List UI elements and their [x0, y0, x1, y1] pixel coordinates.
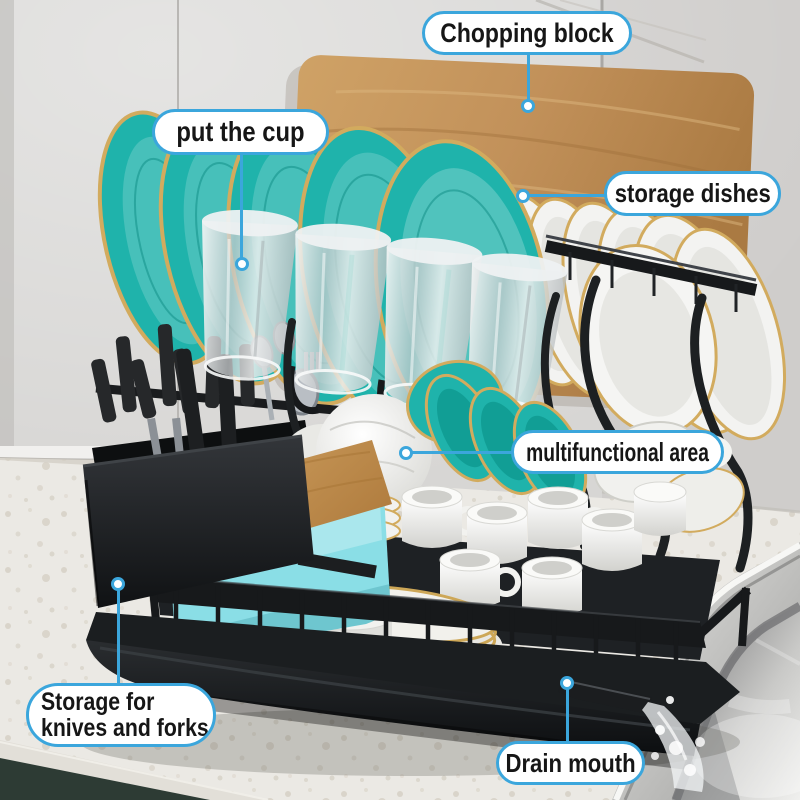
label-text: put the cup	[176, 116, 304, 148]
connector-dot	[521, 99, 535, 113]
connector-dot	[235, 257, 249, 271]
label-text: Drain mouth	[505, 748, 635, 779]
scene-illustration	[0, 0, 800, 800]
connector-line	[527, 55, 530, 103]
label-storage-dishes: storage dishes	[604, 171, 781, 216]
product-photo: Chopping block put the cup storage dishe…	[0, 0, 800, 800]
connector-dot	[399, 446, 413, 460]
connector-line	[117, 588, 120, 688]
label-chopping-block: Chopping block	[422, 11, 632, 55]
connector-line	[406, 451, 514, 454]
connector-line	[523, 194, 607, 197]
label-text: multifunctional area	[526, 437, 709, 468]
label-text: storage dishes	[615, 178, 771, 209]
label-text-line1: Storage for	[41, 689, 154, 716]
connector-dot	[560, 676, 574, 690]
label-drain-mouth: Drain mouth	[496, 741, 645, 785]
connector-dot	[111, 577, 125, 591]
label-text: Chopping block	[440, 18, 613, 49]
connector-line	[240, 153, 243, 261]
label-text-line2: knives and forks	[41, 715, 209, 742]
connector-dot	[516, 189, 530, 203]
label-storage-knives: Storage for knives and forks	[26, 683, 216, 747]
connector-line	[566, 687, 569, 745]
label-put-the-cup: put the cup	[152, 109, 329, 155]
label-multifunctional-area: multifunctional area	[511, 430, 724, 474]
